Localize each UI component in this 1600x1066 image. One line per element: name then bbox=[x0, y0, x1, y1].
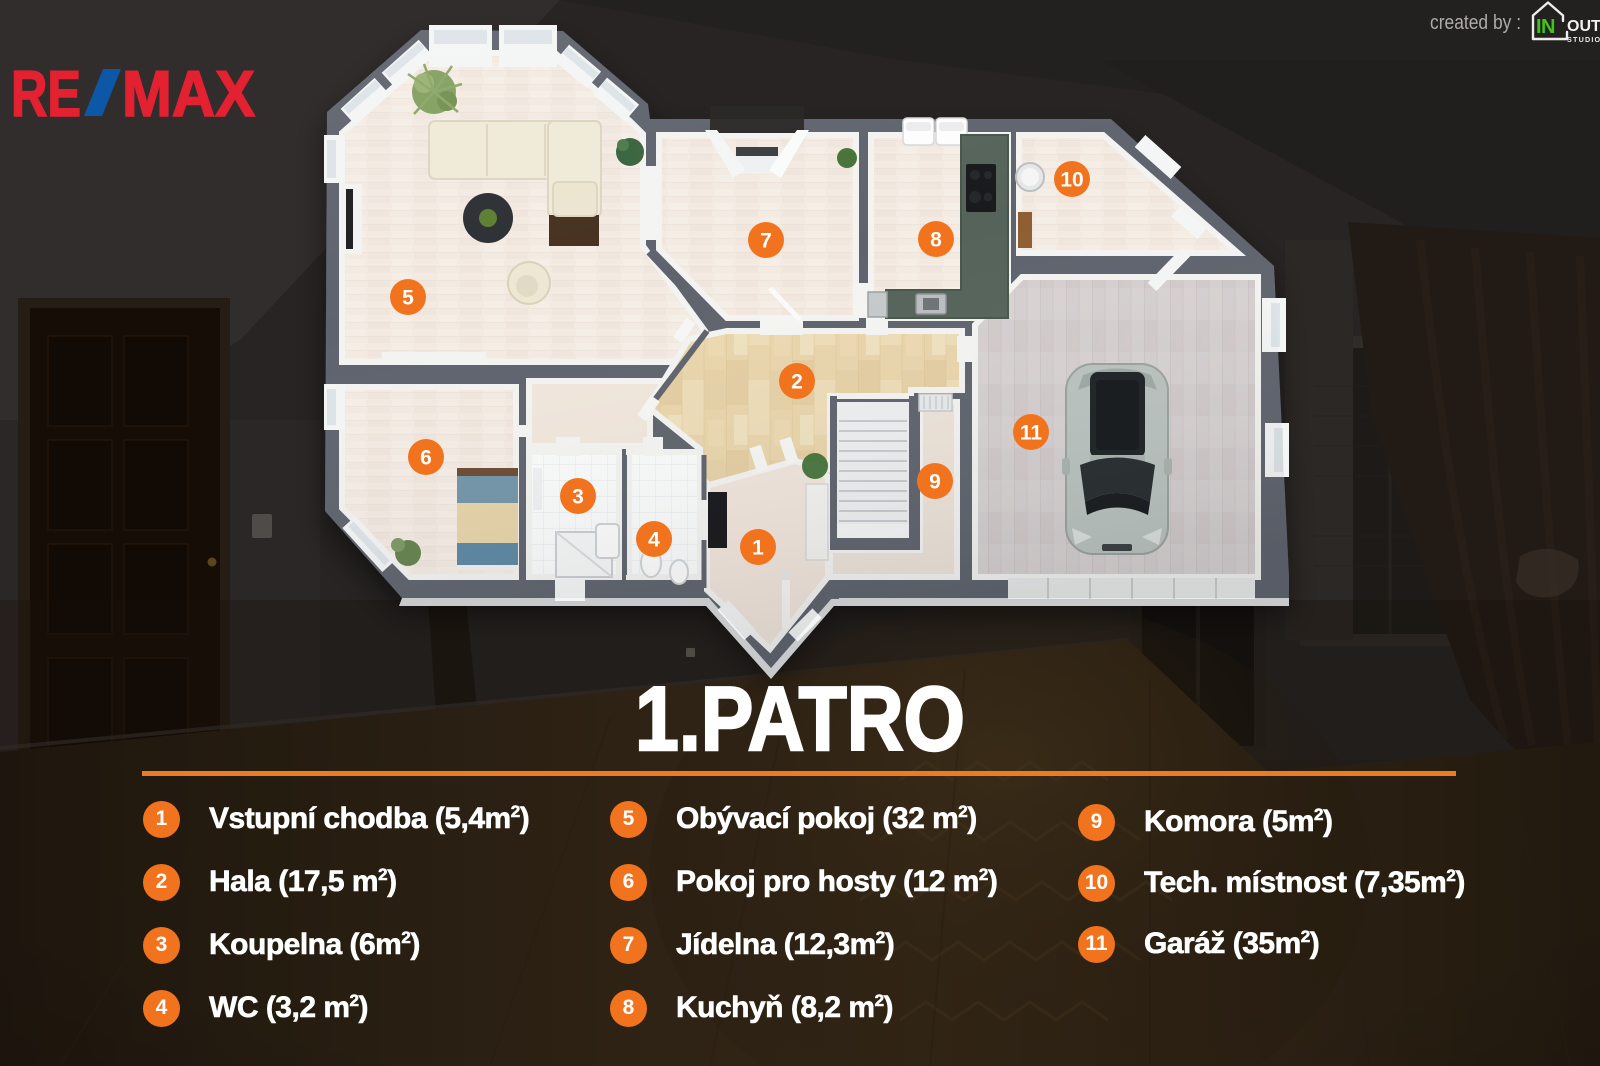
svg-text:7: 7 bbox=[760, 230, 772, 253]
svg-text:6: 6 bbox=[420, 447, 432, 470]
svg-text:10: 10 bbox=[1060, 169, 1083, 192]
svg-text:4: 4 bbox=[648, 529, 660, 552]
svg-text:1.PATRO: 1.PATRO bbox=[635, 682, 965, 756]
svg-text:5: 5 bbox=[402, 287, 414, 310]
svg-text:1: 1 bbox=[752, 537, 764, 560]
svg-text:9: 9 bbox=[929, 471, 941, 494]
svg-text:IN: IN bbox=[1536, 16, 1555, 38]
svg-text:11: 11 bbox=[1020, 422, 1043, 445]
svg-text:8: 8 bbox=[930, 229, 942, 252]
svg-text:MAX: MAX bbox=[122, 69, 255, 119]
svg-text:2: 2 bbox=[791, 371, 803, 394]
svg-text:OUT: OUT bbox=[1567, 18, 1600, 35]
svg-text:RE: RE bbox=[11, 69, 81, 119]
svg-text:STUDIO: STUDIO bbox=[1567, 35, 1600, 44]
svg-text:3: 3 bbox=[572, 486, 584, 509]
